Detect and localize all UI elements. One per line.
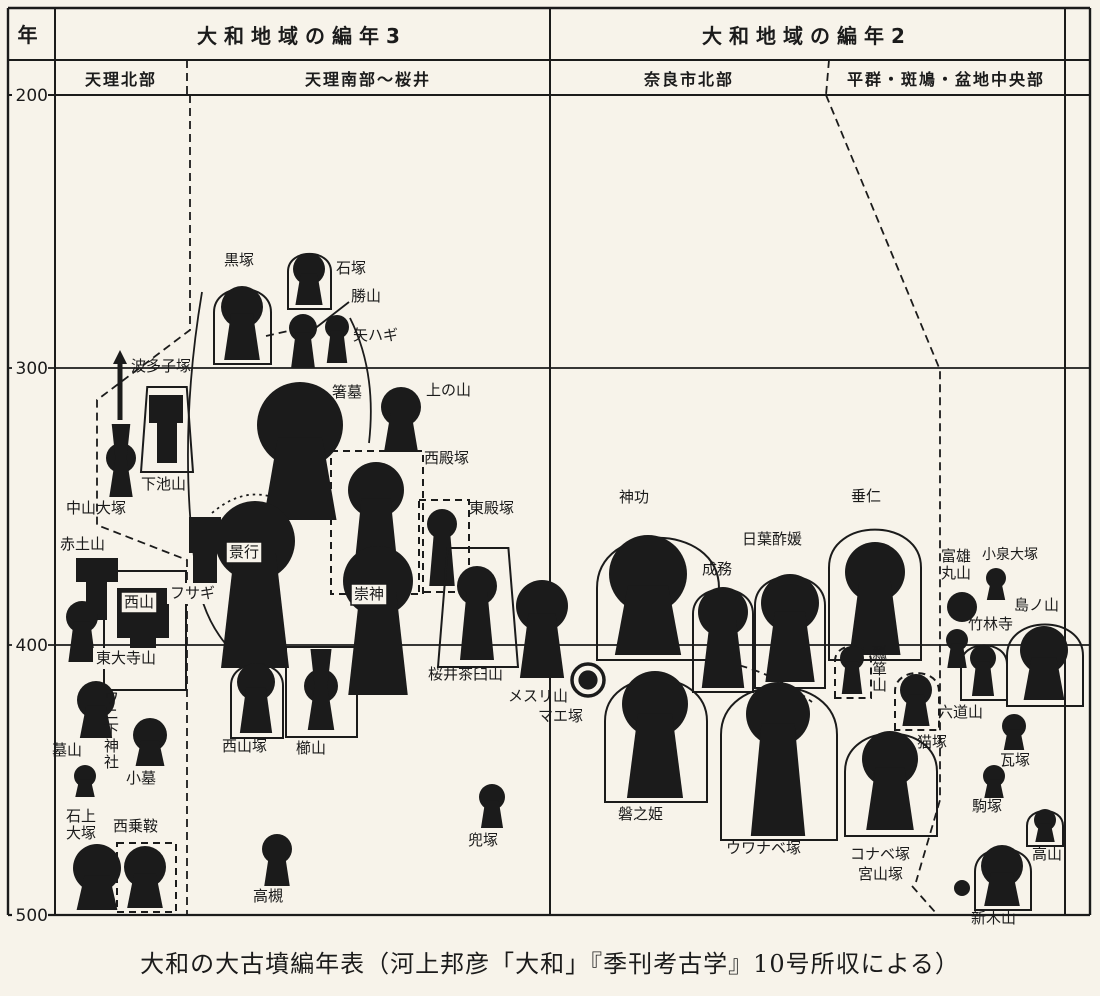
tomb-櫛山-label-group: 櫛山 (296, 739, 326, 757)
tomb-label: 小墓 (126, 769, 156, 787)
tomb-西殿塚-label-group: 西殿塚 (424, 449, 469, 467)
tomb-神功-label-group: 神功 (619, 488, 649, 506)
tomb-高槻-label-group: 高槻 (253, 887, 283, 905)
tick-label-500: 500 (16, 906, 48, 926)
tomb-宮山塚 (954, 880, 970, 896)
tomb-駒塚 (983, 765, 1005, 798)
tomb-label: 西山塚 (222, 737, 267, 755)
tomb-下池山-label-group: 下池山 (141, 475, 186, 493)
tomb-unnamed (74, 765, 96, 797)
tomb-駒塚-label-group: 駒塚 (972, 797, 1002, 815)
tick-label-300: 300 (16, 359, 48, 379)
tomb-label: 石塚 (336, 259, 366, 277)
tomb-label: マエ塚 (538, 707, 583, 725)
tomb-瓢箪山-label-group: 瓢箪山 (872, 644, 887, 694)
subheader-tenri-south-sakurai: 天理南部～桜井 (305, 70, 431, 89)
tomb-label: 景行 (229, 543, 259, 561)
tomb-label: 瓢箪山 (872, 644, 887, 694)
axis-tick-200: 200 (12, 84, 48, 106)
tomb-ワニ下神社-label-group: ワニ下神社 (104, 689, 119, 771)
tomb-上の山-label-group: 上の山 (426, 381, 471, 399)
tomb-磐之姫-label-group: 磐之姫 (618, 805, 663, 823)
tomb-label: フサギ (170, 584, 215, 602)
tomb-高山-label-group: 高山 (1032, 845, 1062, 863)
header-chronology-3: 大和地域の編年3 (197, 24, 407, 48)
tomb-label: 黒塚 (224, 251, 254, 269)
tomb-西乗鞍-label-group: 西乗鞍 (113, 817, 158, 835)
tomb-六道山-label-group: 六道山 (938, 703, 983, 721)
tomb-label: 六道山 (938, 703, 983, 721)
tomb-label: 下池山 (141, 475, 186, 493)
tomb-小泉大塚 (986, 568, 1006, 600)
tomb-label: 赤土山 (60, 535, 105, 553)
tomb-西山-label-group: 西山 (121, 592, 157, 613)
tomb-日葉酢媛-label-group: 日葉酢媛 (742, 530, 802, 548)
axis-tick-500: 500 (12, 904, 48, 926)
header-chronology-2: 大和地域の編年2 (702, 24, 912, 48)
tomb-label: 矢ハギ (353, 326, 398, 344)
square-tomb-top (149, 395, 183, 423)
tomb-桜井茶臼山-label-group: 桜井茶臼山 (428, 665, 503, 683)
tomb-label: 竹林寺 (968, 615, 1013, 633)
tomb-label: 富雄丸山 (941, 547, 971, 582)
tomb-勝山-label-group: 勝山 (351, 287, 381, 305)
tomb-label: 東殿塚 (469, 499, 514, 517)
tomb-label: 垂仁 (851, 487, 881, 505)
tomb-label: 日葉酢媛 (742, 530, 802, 548)
tomb-小墓-label-group: 小墓 (126, 769, 156, 787)
tick-label-200: 200 (16, 86, 48, 106)
tomb-黒塚-label-group: 黒塚 (224, 251, 254, 269)
tomb-label: 上の山 (426, 381, 471, 399)
tomb-箸墓-label-group: 箸墓 (332, 383, 362, 401)
tomb-中山大塚-label-group: 中山大塚 (66, 499, 126, 517)
tick-label-400: 400 (16, 636, 48, 656)
tomb-瓦塚-label-group: 瓦塚 (1000, 751, 1030, 769)
tomb-成務-label-group: 成務 (702, 560, 732, 578)
tomb-メスリ山-label-group: メスリ山 (508, 687, 568, 705)
diagram-canvas: 波多子塚下池山中山大塚赤土山西山東大寺山墓山ワニ下神社小墓石上大塚西乗鞍黒塚石塚… (0, 0, 1100, 996)
tomb-label: ワニ下神社 (104, 689, 119, 771)
subheader-heguri-ikaruga: 平群・斑鳩・盆地中央部 (847, 70, 1045, 89)
tomb-label: 島ノ山 (1014, 596, 1059, 614)
tomb-label: 桜井茶臼山 (428, 665, 503, 683)
tomb-label: 勝山 (351, 287, 381, 305)
tomb-墓山-label-group: 墓山 (52, 741, 82, 759)
tomb-label: 西山 (124, 593, 154, 611)
tomb-label: 磐之姫 (618, 805, 663, 823)
axis-tick-300: 300 (12, 357, 48, 379)
tomb-label: 櫛山 (296, 739, 326, 757)
axis-tick-400: 400 (12, 634, 48, 656)
tomb-label: 高槻 (253, 887, 283, 905)
tomb-label: 瓦塚 (1000, 751, 1030, 769)
square-tomb-front (157, 423, 177, 463)
tomb-label: 崇神 (354, 585, 384, 603)
tomb-label: 高山 (1032, 845, 1062, 863)
tomb-label: メスリ山 (508, 687, 568, 705)
tomb-コナベ塚-label-group: コナベ塚 (850, 845, 910, 863)
tomb-label: 新木山 (971, 909, 1016, 927)
tomb-景行-label-group: 景行 (226, 542, 262, 563)
tomb-赤土山-label-group: 赤土山 (60, 535, 105, 553)
tomb-東大寺山-label-group: 東大寺山 (93, 648, 159, 669)
tomb-石上大塚-label-group: 石上大塚 (66, 807, 96, 842)
tomb-瓦塚 (1002, 714, 1026, 750)
axis-unit-label: 年 (18, 23, 45, 47)
tomb-label: 中山大塚 (66, 499, 126, 517)
tomb-竹林寺-label-group: 竹林寺 (968, 615, 1013, 633)
tomb-マエ塚-label-group: マエ塚 (538, 707, 583, 725)
tomb-label: 西乗鞍 (113, 817, 158, 835)
tomb-矢ハギ-label-group: 矢ハギ (353, 326, 398, 344)
tomb-label: コナベ塚 (850, 845, 910, 863)
round-tomb (954, 880, 970, 896)
tomb-石上大塚 (73, 844, 121, 910)
ring-center (578, 670, 597, 689)
tomb-label: 墓山 (52, 741, 82, 759)
tomb-label: ウワナベ塚 (726, 839, 801, 857)
tomb-上の山 (381, 387, 421, 452)
tomb-兜塚 (479, 784, 505, 828)
tomb-label: 神功 (619, 488, 649, 506)
tomb-フサギ-label-group: フサギ (167, 583, 218, 604)
tomb-label: 東大寺山 (96, 649, 156, 667)
subheader-nara-north: 奈良市北部 (643, 70, 734, 89)
tomb-label: 小泉大塚 (982, 546, 1038, 563)
tomb-label: 箸墓 (332, 383, 362, 401)
tomb-東殿塚-label-group: 東殿塚 (469, 499, 514, 517)
tomb-宮山塚-label-group: 宮山塚 (858, 865, 903, 883)
tomb-小泉大塚-label-group: 小泉大塚 (982, 546, 1038, 563)
tomb-富雄丸山-label-group: 富雄丸山 (941, 547, 971, 582)
tomb-label: 兜塚 (468, 831, 498, 849)
kofun-chronology-diagram: 波多子塚下池山中山大塚赤土山西山東大寺山墓山ワニ下神社小墓石上大塚西乗鞍黒塚石塚… (0, 0, 1100, 996)
tomb-label: 猫塚 (917, 733, 947, 751)
tomb-label: 西殿塚 (424, 449, 469, 467)
tomb-新木山-label-group: 新木山 (971, 909, 1016, 927)
tomb-label: 石上大塚 (66, 807, 96, 842)
tomb-波多子塚-label-group: 波多子塚 (131, 357, 191, 375)
square-tomb-top (189, 517, 221, 553)
tomb-label: 成務 (702, 560, 732, 578)
figure-caption: 大和の大古墳編年表（河上邦彦「大和」『季刊考古学』10号所収による） (140, 950, 960, 978)
tomb-label: 駒塚 (972, 797, 1002, 815)
tomb-兜塚-label-group: 兜塚 (468, 831, 498, 849)
tomb-ウワナベ塚-label-group: ウワナベ塚 (726, 839, 801, 857)
tomb-小墓 (133, 718, 167, 766)
tomb-猫塚-label-group: 猫塚 (917, 733, 947, 751)
tomb-崇神-label-group: 崇神 (351, 584, 387, 605)
tomb-label: 波多子塚 (131, 357, 191, 375)
tomb-label: 宮山塚 (858, 865, 903, 883)
subheader-tenri-north: 天理北部 (85, 70, 157, 89)
tomb-石塚-label-group: 石塚 (336, 259, 366, 277)
tomb-島ノ山-label-group: 島ノ山 (1014, 596, 1059, 614)
tomb-垂仁-label-group: 垂仁 (851, 487, 881, 505)
tomb-西山塚-label-group: 西山塚 (222, 737, 267, 755)
